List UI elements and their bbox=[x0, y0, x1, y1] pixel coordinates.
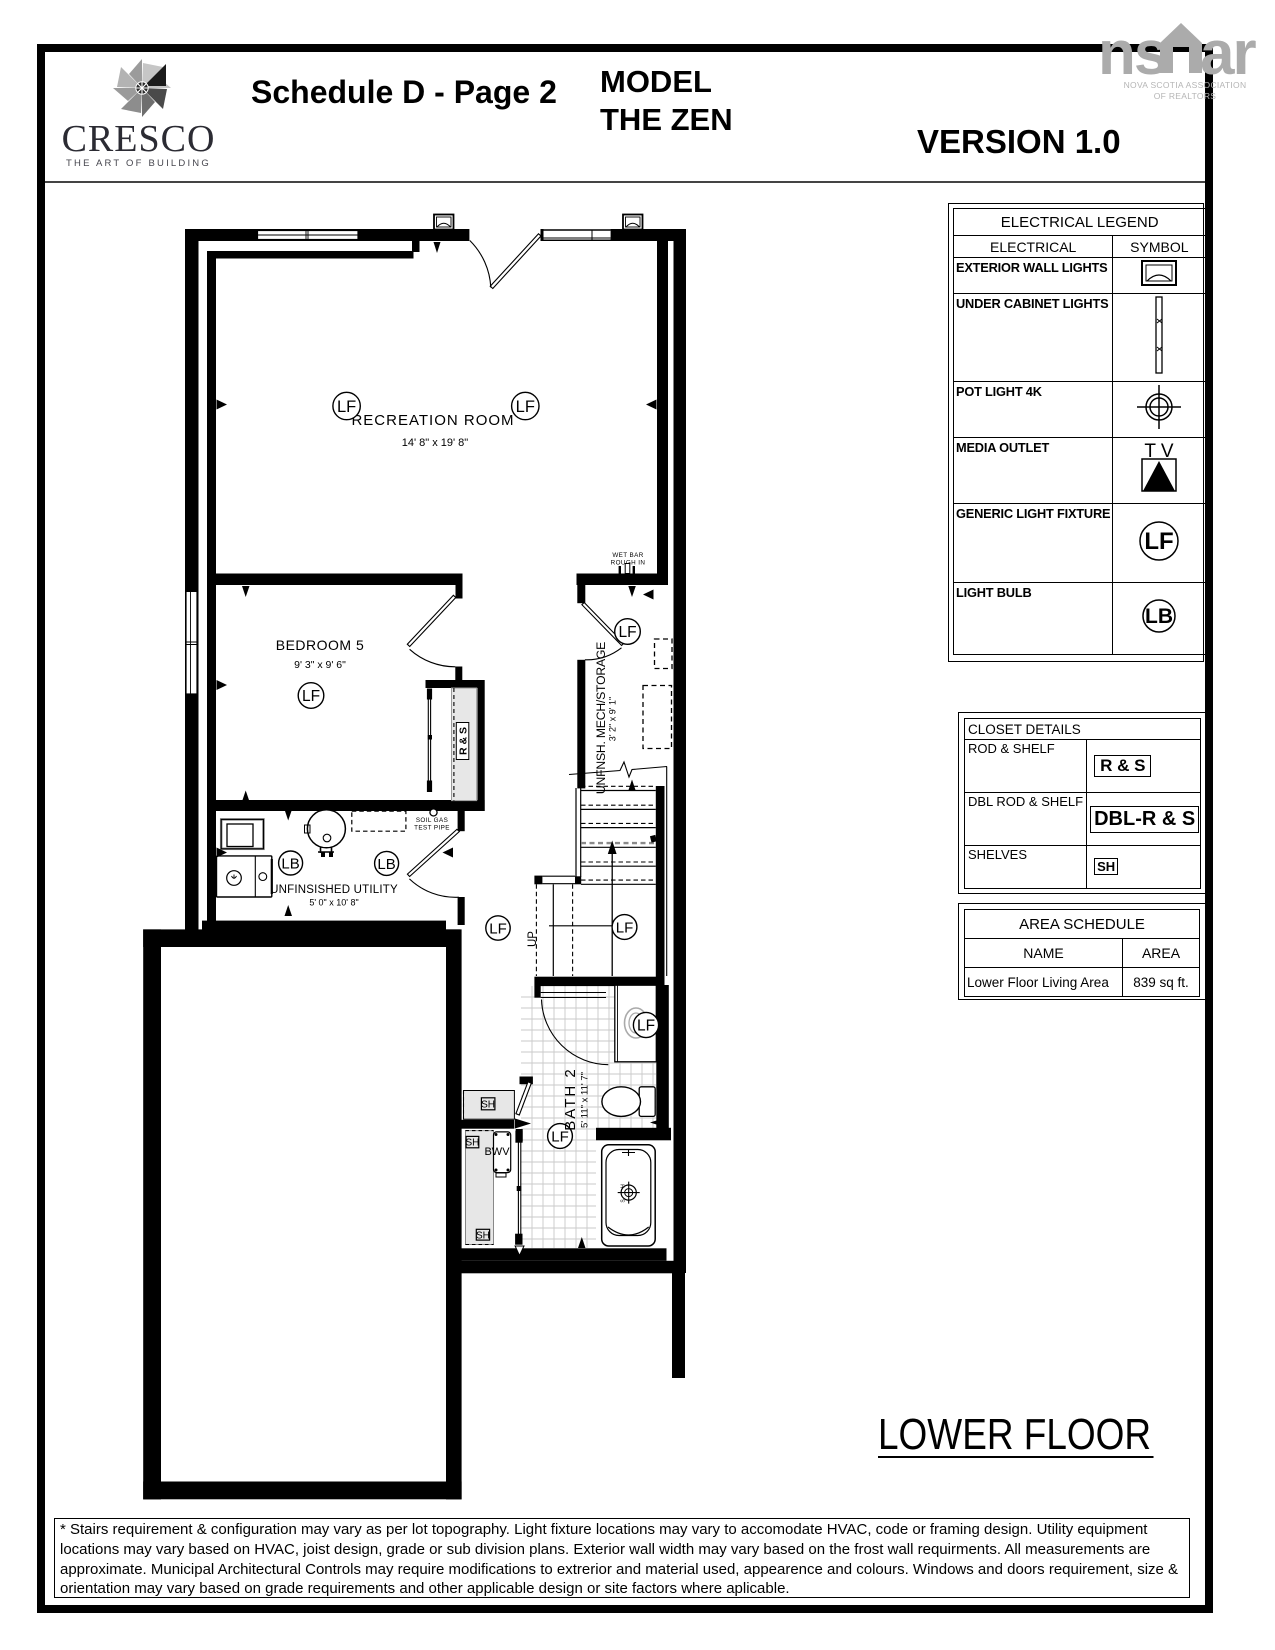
svg-text:LF: LF bbox=[489, 921, 507, 938]
svg-text:BWV: BWV bbox=[484, 1146, 510, 1158]
svg-text:LF: LF bbox=[1145, 528, 1174, 555]
svg-text:UNFINSISHED UTILITY: UNFINSISHED UTILITY bbox=[270, 884, 398, 896]
svg-text:5' 11" x 11' 7": 5' 11" x 11' 7" bbox=[580, 1072, 591, 1128]
svg-text:9' 3" x 9' 6": 9' 3" x 9' 6" bbox=[294, 659, 346, 671]
svg-text:BATH 2: BATH 2 bbox=[562, 1067, 579, 1130]
svg-text:LF: LF bbox=[618, 624, 636, 641]
svg-text:SH: SH bbox=[476, 1230, 490, 1241]
svg-text:SOIL GAS: SOIL GAS bbox=[416, 817, 448, 824]
svg-text:14' 8" x 19' 8": 14' 8" x 19' 8" bbox=[402, 437, 469, 449]
svg-text:WET BAR: WET BAR bbox=[612, 552, 643, 559]
svg-text:UNFNSH. MECH/STORAGE: UNFNSH. MECH/STORAGE bbox=[594, 642, 608, 794]
svg-text:LB: LB bbox=[377, 856, 395, 873]
svg-text:5' 0" x 10' 8": 5' 0" x 10' 8" bbox=[309, 898, 358, 908]
svg-text:SH: SH bbox=[481, 1100, 495, 1111]
svg-text:LB: LB bbox=[281, 856, 299, 873]
svg-text:3' 2" x 9' 1": 3' 2" x 9' 1" bbox=[608, 697, 618, 741]
svg-text:LF: LF bbox=[616, 920, 634, 937]
svg-text:LF: LF bbox=[516, 398, 535, 416]
svg-text:R & S: R & S bbox=[457, 727, 469, 755]
svg-text:BEDROOM 5: BEDROOM 5 bbox=[276, 637, 365, 653]
svg-text:SH: SH bbox=[465, 1138, 479, 1149]
svg-text:H: H bbox=[621, 1184, 627, 1188]
svg-text:UP: UP bbox=[527, 931, 539, 947]
svg-text:LB: LB bbox=[1145, 605, 1173, 628]
svg-text:LF: LF bbox=[637, 1018, 655, 1035]
svg-text:LF: LF bbox=[337, 398, 356, 416]
svg-text:TEST PIPE: TEST PIPE bbox=[414, 825, 450, 832]
svg-text:RECREATION ROOM: RECREATION ROOM bbox=[351, 412, 514, 429]
svg-text:LF: LF bbox=[302, 688, 320, 705]
